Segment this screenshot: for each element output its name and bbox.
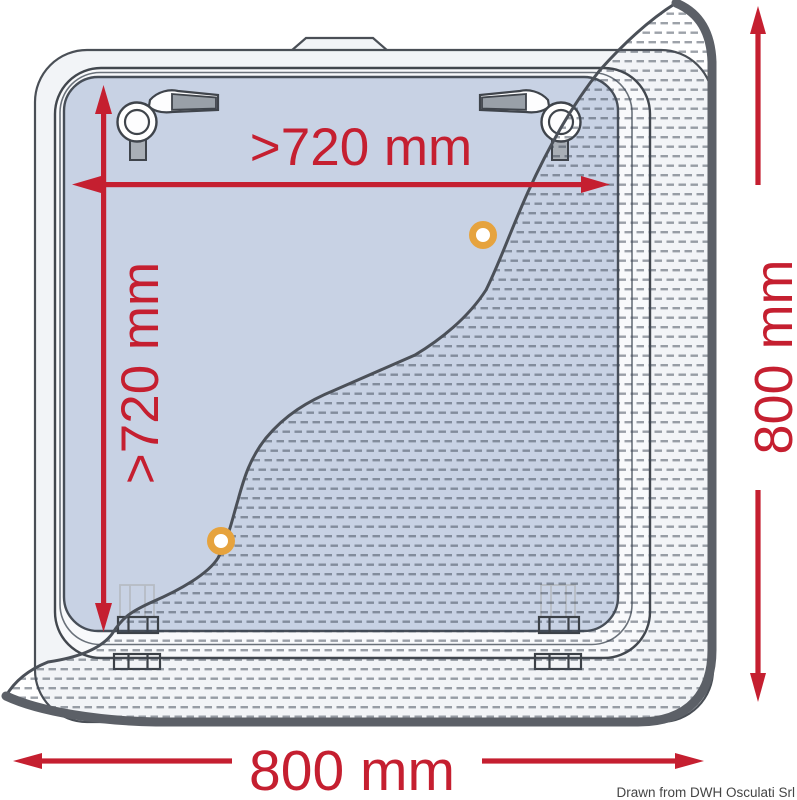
latch-stem-icon <box>130 140 146 160</box>
latch-blade-icon <box>172 94 216 110</box>
mesh-knob-top <box>473 225 494 246</box>
latch-ring-inner-icon <box>125 110 149 134</box>
latch-blade-icon <box>482 94 526 110</box>
dimension-overall-width-label: 800 mm <box>249 739 455 800</box>
hatch-dimension-diagram: >720 mm >720 mm 800 mm 800 mm Drawn from… <box>0 0 797 800</box>
mesh-knob-bottom <box>211 531 232 552</box>
dimension-cutout-height-label: >720 mm <box>111 262 170 484</box>
credit-note: Drawn from DWH Osculati Srl <box>616 785 795 800</box>
dimension-overall-height-label: 800 mm <box>744 259 797 454</box>
diagram-canvas: >720 mm >720 mm 800 mm 800 mm Drawn from… <box>0 0 797 800</box>
dimension-cutout-width-label: >720 mm <box>250 118 472 177</box>
